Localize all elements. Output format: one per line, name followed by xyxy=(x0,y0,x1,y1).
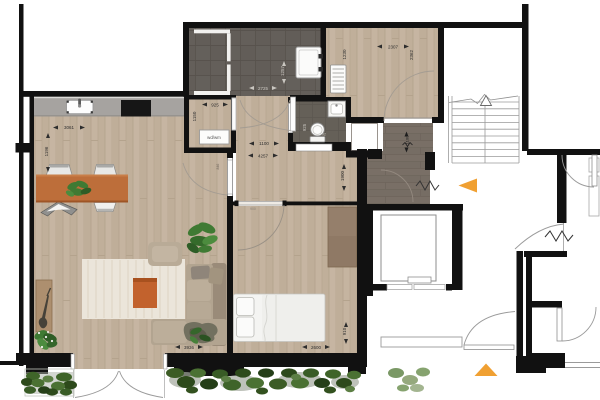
svg-text:3061: 3061 xyxy=(64,125,75,130)
svg-text:1196: 1196 xyxy=(44,146,49,156)
svg-text:910: 910 xyxy=(342,327,347,335)
svg-text:925: 925 xyxy=(211,103,219,108)
svg-text:4257: 4257 xyxy=(258,154,269,159)
svg-text:1900: 1900 xyxy=(340,170,345,181)
svg-text:925: 925 xyxy=(302,123,307,131)
svg-text:2307: 2307 xyxy=(388,45,399,50)
svg-text:2600: 2600 xyxy=(311,345,322,350)
svg-text:92: 92 xyxy=(322,133,326,137)
svg-text:1150: 1150 xyxy=(192,111,197,121)
svg-text:wd/wm: wd/wm xyxy=(207,135,221,140)
svg-text:846: 846 xyxy=(216,164,220,170)
svg-text:1257: 1257 xyxy=(280,65,285,76)
svg-text:1100: 1100 xyxy=(259,141,269,146)
svg-text:2725: 2725 xyxy=(258,86,269,91)
svg-text:900: 900 xyxy=(250,207,256,211)
svg-text:1230: 1230 xyxy=(342,49,347,60)
svg-text:3936: 3936 xyxy=(184,345,195,350)
svg-text:2362: 2362 xyxy=(409,49,414,60)
